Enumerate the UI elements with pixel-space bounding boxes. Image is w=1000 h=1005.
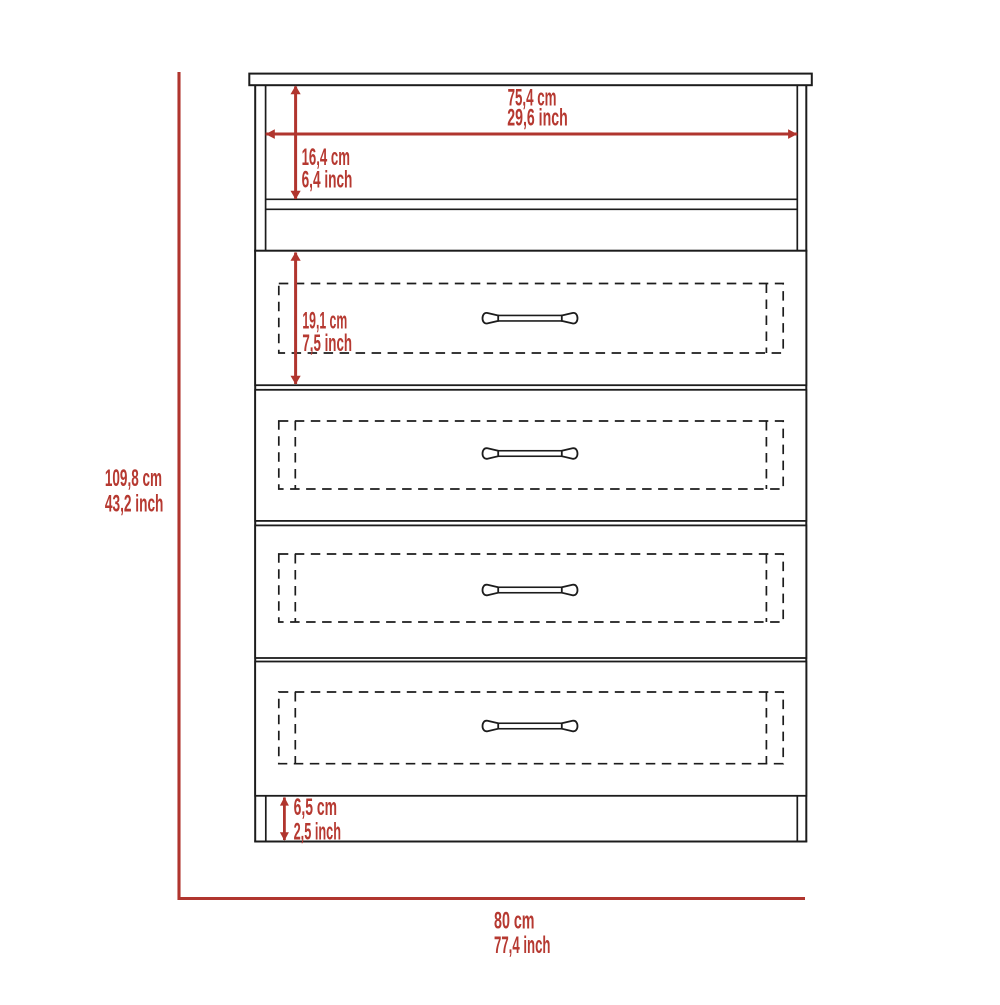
svg-text:2,5 inch: 2,5 inch bbox=[294, 819, 341, 846]
svg-text:43,2 inch: 43,2 inch bbox=[105, 490, 164, 517]
svg-text:6,4 inch: 6,4 inch bbox=[302, 167, 353, 194]
svg-text:7,5 inch: 7,5 inch bbox=[302, 330, 352, 357]
svg-text:109,8 cm: 109,8 cm bbox=[105, 465, 162, 492]
svg-text:77,4 inch: 77,4 inch bbox=[494, 932, 551, 959]
svg-text:80 cm: 80 cm bbox=[494, 908, 535, 935]
svg-text:29,6 inch: 29,6 inch bbox=[507, 105, 567, 132]
svg-text:6,5 cm: 6,5 cm bbox=[294, 794, 337, 821]
